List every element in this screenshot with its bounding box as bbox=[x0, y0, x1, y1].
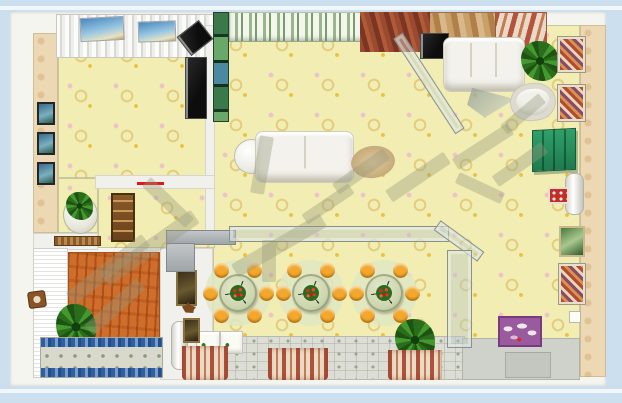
striped-drape-2[interactable] bbox=[268, 348, 328, 380]
dining-stool[interactable] bbox=[405, 286, 420, 301]
dining-stool[interactable] bbox=[393, 263, 408, 278]
dining-stool[interactable] bbox=[332, 286, 347, 301]
kitchen-counter-short[interactable] bbox=[166, 243, 195, 272]
wall-clock[interactable] bbox=[27, 290, 47, 309]
hall-shelf-cabinet[interactable] bbox=[111, 193, 135, 242]
flower-centerpiece bbox=[230, 285, 246, 301]
watermark-stroke bbox=[262, 240, 276, 282]
dining-stool[interactable] bbox=[259, 286, 274, 301]
flower-centerpiece bbox=[376, 285, 392, 301]
divider-wall-landscape-pictures bbox=[213, 12, 229, 122]
floorplan-canvas bbox=[0, 0, 622, 403]
dining-stool[interactable] bbox=[360, 263, 375, 278]
wall-art-mosaic-1[interactable] bbox=[558, 37, 585, 72]
pedestal-plant[interactable] bbox=[66, 192, 93, 220]
window-sky-poster-2[interactable] bbox=[138, 20, 177, 42]
dining-stool[interactable] bbox=[320, 308, 335, 323]
glass-door[interactable] bbox=[447, 250, 472, 348]
top-right-sofa[interactable] bbox=[443, 37, 525, 92]
window-sky-poster-1[interactable] bbox=[79, 16, 124, 42]
dining-stool[interactable] bbox=[276, 286, 291, 301]
light-switch[interactable] bbox=[569, 311, 581, 323]
frame-highlight-bottom bbox=[0, 389, 622, 393]
wall-picture-green-right[interactable] bbox=[559, 226, 585, 257]
dining-stool[interactable] bbox=[320, 263, 335, 278]
dining-stool[interactable] bbox=[247, 308, 262, 323]
wall-picture-blue-3[interactable] bbox=[37, 162, 55, 185]
frame-highlight-top bbox=[0, 6, 622, 10]
wall-picture-mosaic-right[interactable] bbox=[559, 264, 585, 304]
dining-stool[interactable] bbox=[203, 286, 218, 301]
bed-rug[interactable] bbox=[40, 337, 163, 378]
dining-stool[interactable] bbox=[287, 263, 302, 278]
flower-centerpiece bbox=[303, 285, 319, 301]
hall-picture-small[interactable] bbox=[183, 318, 200, 343]
wall-picture-blue-1[interactable] bbox=[37, 102, 55, 125]
wall-art-mosaic-2[interactable] bbox=[558, 85, 585, 121]
dining-stool[interactable] bbox=[393, 308, 408, 323]
hall-picture-dark[interactable] bbox=[176, 270, 197, 306]
striped-drape-3[interactable] bbox=[388, 350, 442, 380]
tv-left-room[interactable] bbox=[185, 57, 207, 119]
wall-picture-blue-2[interactable] bbox=[37, 132, 55, 155]
striped-drape-1[interactable] bbox=[182, 346, 228, 380]
doormat[interactable] bbox=[54, 236, 101, 246]
dining-stool[interactable] bbox=[349, 286, 364, 301]
entry-mat[interactable] bbox=[505, 352, 551, 378]
small-red-picture[interactable] bbox=[548, 187, 569, 204]
purple-poster[interactable] bbox=[498, 316, 542, 347]
dining-stool[interactable] bbox=[214, 263, 229, 278]
